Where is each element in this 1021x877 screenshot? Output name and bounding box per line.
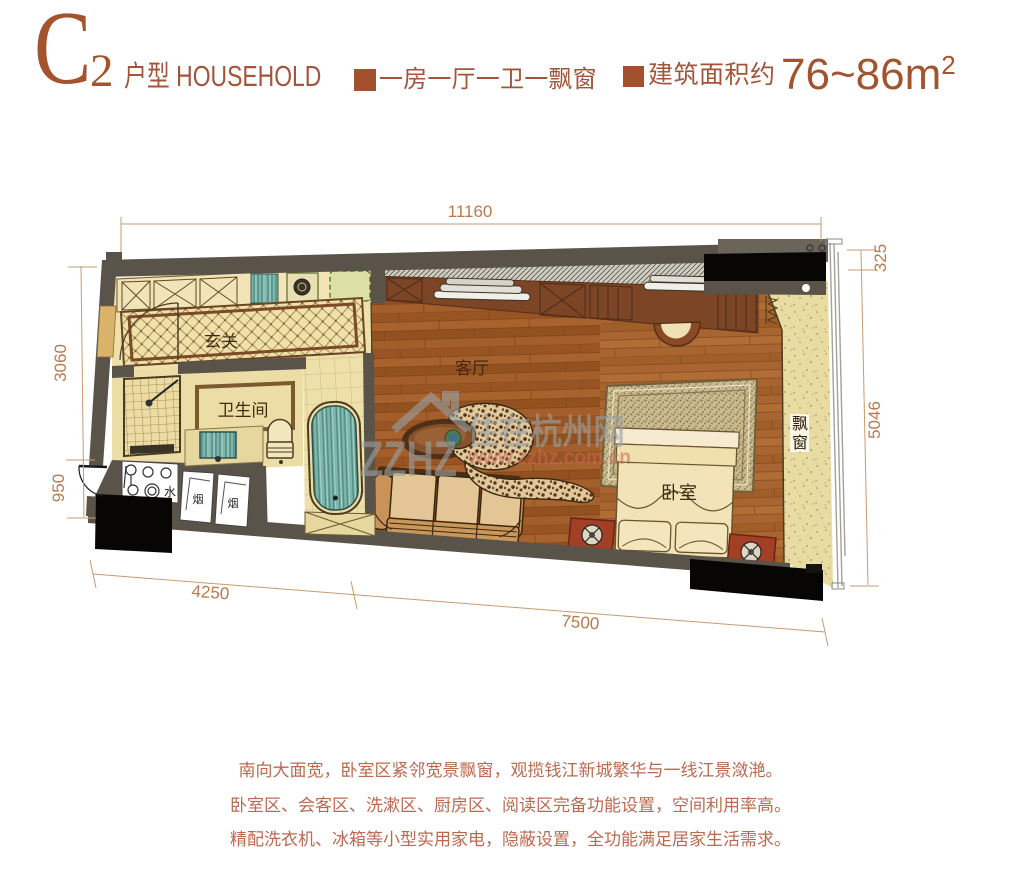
svg-text:卧室: 卧室 — [661, 483, 697, 503]
svg-text:卫生间: 卫生间 — [218, 401, 269, 420]
svg-text:5046: 5046 — [865, 401, 884, 439]
svg-text:11160: 11160 — [448, 202, 493, 221]
svg-text:客厅: 客厅 — [455, 359, 489, 378]
svg-text:950: 950 — [49, 474, 68, 502]
svg-text:玄关: 玄关 — [204, 332, 238, 351]
svg-text:窗: 窗 — [792, 434, 808, 452]
svg-text:325: 325 — [871, 244, 890, 272]
svg-text:烟: 烟 — [228, 496, 239, 510]
svg-text:烟: 烟 — [193, 492, 204, 506]
svg-text:水: 水 — [164, 485, 176, 499]
svg-text:飘: 飘 — [792, 416, 808, 433]
svg-text:ZZHZ: ZZHZ — [360, 431, 457, 487]
svg-text:3060: 3060 — [51, 344, 70, 382]
svg-text:4250: 4250 — [191, 582, 230, 604]
svg-text:7500: 7500 — [561, 612, 600, 634]
svg-text:www.zzhz.com.cn: www.zzhz.com.cn — [467, 446, 631, 469]
